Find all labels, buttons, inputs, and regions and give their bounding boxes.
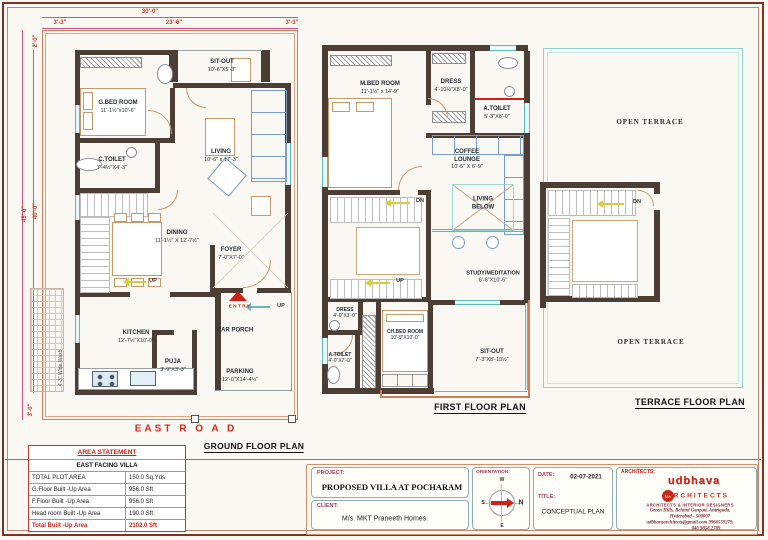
table-header: AREA STATEMENT [29, 446, 185, 459]
room-label-mbed: M.BED ROOM 11'-1½" x 14'-9" [360, 81, 400, 95]
wall [257, 288, 291, 293]
room-label-living: LIVING 10'-6" x 17'-3" [204, 149, 238, 163]
terrace-plan-title: TERRACE FLOOR PLAN [635, 397, 745, 409]
room-label-ctoilet: C.TOILET 7'-4½"X4'-3" [97, 157, 127, 171]
cabinet [382, 374, 428, 387]
boundary-line [380, 396, 529, 398]
meditation-seat [486, 236, 499, 249]
project-value: PROPOSED VILLA AT POCHARAM [322, 482, 463, 492]
room-label-dress2: DRESS 4'-0"X3'-0" [333, 307, 356, 319]
wardrobe [80, 57, 142, 68]
compass-n: N [518, 500, 523, 507]
open-terrace-label: OPEN TERRACE [617, 338, 684, 346]
wall [524, 51, 530, 103]
terrace-boundary-inner [547, 52, 739, 384]
room-label-atoilet2: A.TOILET 4'-0"X7'-0" [328, 352, 351, 364]
room-label-chbed: CH.BED ROOM 10'-9"X10'-0" [387, 329, 423, 341]
compass-w: W [500, 477, 505, 483]
stairs [80, 217, 110, 293]
up-label: UP [277, 303, 285, 309]
dn-arrow [390, 202, 410, 204]
table-subheader: EAST FACING VILLA [29, 459, 185, 471]
compass-s: S [481, 500, 484, 506]
toilet-wc [504, 86, 515, 97]
dn-arrow [602, 203, 624, 205]
boundary-line [380, 390, 382, 397]
porch-edge [215, 390, 292, 391]
dim-label: 3'-3" [54, 20, 67, 26]
sofa [251, 90, 287, 182]
wall [170, 292, 215, 297]
address-line1: Green Hills, Behind Ganpati, Antriguda, [650, 509, 731, 514]
drawing-sheet: 30'-0" 3'-3" 23'-6" 3'-3" 2'-0" 45'-0" 4… [0, 0, 768, 540]
contact-line1: udbhavaarchitects@gmail.com 9966559279, [646, 521, 733, 526]
dim-label: 30'-0" [142, 9, 158, 15]
date-label: DATE: [538, 472, 554, 478]
title-value: CONCEPTUAL PLAN [542, 509, 605, 516]
sink [130, 371, 156, 386]
wall [261, 50, 270, 82]
boundary-marker [191, 415, 199, 423]
chair [131, 213, 144, 222]
dim-line [22, 30, 23, 420]
client-label: CLIENT: [317, 503, 338, 509]
east-road-label: EAST R O A D [135, 424, 237, 435]
wall [470, 51, 475, 135]
up-label: UP [396, 278, 404, 284]
wall [426, 51, 431, 105]
table-row: F.Floor Built -Up Area 956.0 Sft [29, 495, 185, 507]
entry-arrow [229, 291, 247, 301]
wall [322, 190, 400, 195]
room-label-atoilet1: A.TOILET 5'-3"X8'-0" [483, 106, 510, 120]
pillow [386, 314, 424, 322]
room-label-kitchen: KITCHEN 12'-7½"X10'-0" [118, 330, 154, 344]
wash-basin [329, 320, 340, 331]
wall [355, 335, 360, 392]
window [75, 315, 80, 343]
logo-name: udbhava [668, 475, 720, 487]
toilet-wc [126, 147, 137, 158]
sitout-edge [435, 391, 527, 392]
up-arrow [370, 282, 390, 284]
stairs [330, 197, 422, 223]
wall [540, 182, 546, 308]
wall [215, 292, 221, 390]
boundary-marker [288, 415, 296, 423]
room-label-gbed: G.BED ROOM 11'-1½"x10'-6" [98, 100, 137, 114]
dn-label: DN [633, 199, 641, 205]
porch-up-arrow [250, 306, 270, 308]
boundary-line [528, 300, 530, 398]
dim-label: 23'-6" [166, 20, 182, 26]
room-label-sitout: SIT-OUT 10'-6"X5'-3" [208, 59, 237, 73]
dim-label: 3'-3" [286, 20, 299, 26]
table-row: G.Floor Built -Up Area 956.0 Sft [29, 483, 185, 495]
wardrobe [330, 55, 392, 66]
toilet-wc [327, 366, 340, 384]
dim-line [42, 17, 298, 18]
ground-plan-title: GROUND FLOOR PLAN [204, 441, 304, 453]
compass-needle-head [507, 498, 514, 508]
architects-label: ARCHITECTS: [621, 469, 655, 475]
wall [654, 182, 660, 194]
room-label-study: STUDY/MEDITATION 6'-6"X10'-6" [466, 270, 520, 283]
orientation-label: ORIENTATION: [476, 470, 510, 475]
wall [75, 138, 175, 143]
dim-label: 3'-0" [28, 404, 34, 417]
room-label-puja: PUJA 3'-9"X3'-3" [160, 359, 186, 373]
meditation-seat [452, 236, 465, 249]
title-label: TITLE: [538, 494, 555, 500]
table-row: TOTAL PLOT AREA 150.0 Sq.Yds [29, 471, 185, 483]
pillow [83, 112, 93, 130]
room-label-sitout1f: SIT-OUT 7'-3"X8'-10½" [475, 349, 508, 363]
date-value: 02-07-2021 [570, 474, 602, 481]
first-plan-title: FIRST FLOOR PLAN [434, 402, 526, 414]
wall [426, 190, 431, 302]
window [455, 300, 500, 305]
window [490, 45, 516, 51]
table-row-total: Total Built -Up Area 2102.0 Sft [29, 519, 185, 531]
compass-e: E [500, 523, 503, 529]
stove [92, 371, 118, 387]
dim-label: 45'-0" [22, 206, 28, 222]
window [322, 338, 328, 364]
room-label-foyer: FOYER 7'-0"X7'-0" [218, 247, 244, 261]
entry-label: ENTRY [229, 304, 252, 309]
address-line2: Hyderabad - 500007 [670, 515, 710, 520]
wash-label: 4'-3" Wide Wash [58, 350, 64, 387]
project-label: PROJECT: [317, 470, 344, 476]
room-label-parking: PARKING 12'-0"X14'-4½" [222, 369, 258, 383]
stairs [572, 284, 638, 298]
chair [114, 213, 127, 222]
dim-line [42, 28, 298, 29]
compass-needle [491, 501, 507, 505]
wash-basin [157, 64, 173, 84]
sitout-edge [178, 50, 262, 51]
wall [376, 297, 381, 392]
chair [148, 213, 161, 222]
wall [540, 182, 660, 188]
client-value: M/s. MKT Praneeth Homes. [342, 516, 428, 523]
wall [152, 330, 174, 335]
wall [524, 137, 530, 303]
area-statement-table: AREA STATEMENT EAST FACING VILLA TOTAL P… [28, 445, 186, 532]
porch-edge [291, 292, 292, 391]
wardrobe [432, 53, 466, 64]
dim-label: 2'-0" [33, 35, 39, 48]
wall [322, 388, 434, 394]
room-label-dining: DINING 11'-1½" X 12'-7½" [155, 230, 199, 244]
room-label-dress1: DRESS 4'-10½"X8'-0" [434, 79, 467, 93]
wall [75, 390, 197, 395]
room-label-coffee: COFFEE LOUNGE 10'-6" X 6'-9" [451, 149, 483, 171]
room-label-carporch: CAR PORCH [217, 327, 253, 335]
logo-subname: ARCHITECTS [667, 493, 729, 500]
stair-landing [572, 220, 638, 282]
wall [428, 300, 433, 390]
pillow [83, 92, 93, 110]
toilet-counter [475, 98, 524, 100]
pillow [356, 102, 374, 112]
open-terrace-label: OPEN TERRACE [616, 118, 683, 126]
dim-label: 40'-0" [33, 203, 39, 219]
window [524, 103, 530, 137]
dn-label: DN [416, 198, 424, 204]
up-label: UP [149, 278, 157, 284]
wall [75, 50, 173, 55]
table-row: Head room Built -Up Area 190.0 Sft [29, 507, 185, 519]
wall [654, 210, 660, 302]
stairs [548, 218, 570, 296]
wall [155, 143, 160, 193]
pillow [332, 102, 350, 112]
logo-tagline: ARCHITECTS & INTERIOR DESIGNERS [646, 503, 733, 508]
wall [322, 187, 328, 338]
bathtub [498, 57, 518, 69]
contact-line2: 040 9858 2789 [692, 527, 721, 532]
room-label-living-below: LIVING BELOW [472, 197, 494, 212]
stair-landing [356, 227, 420, 275]
wardrobe [362, 315, 376, 390]
up-arrow [128, 281, 146, 283]
